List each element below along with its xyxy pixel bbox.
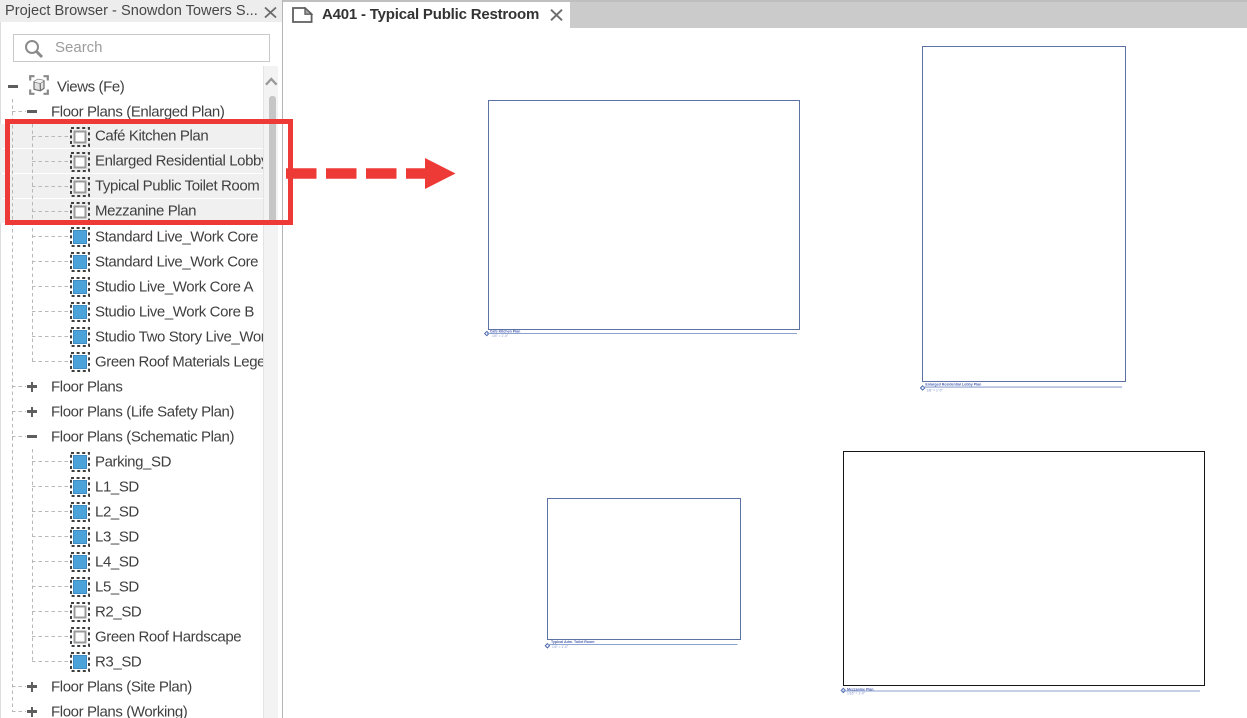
svg-text:1/8" = 1'-0": 1/8" = 1'-0" — [927, 389, 944, 393]
svg-text:1/4" = 1'-0": 1/4" = 1'-0" — [552, 645, 569, 649]
svg-text:Enlarged Residential Lobby Pla: Enlarged Residential Lobby Plan — [925, 383, 981, 387]
svg-text:1/4" = 1'-0": 1/4" = 1'-0" — [492, 334, 509, 338]
svg-text:Typical Adm. Toilet Room: Typical Adm. Toilet Room — [551, 640, 594, 644]
svg-text:1/16" = 1'-0": 1/16" = 1'-0" — [847, 692, 866, 696]
